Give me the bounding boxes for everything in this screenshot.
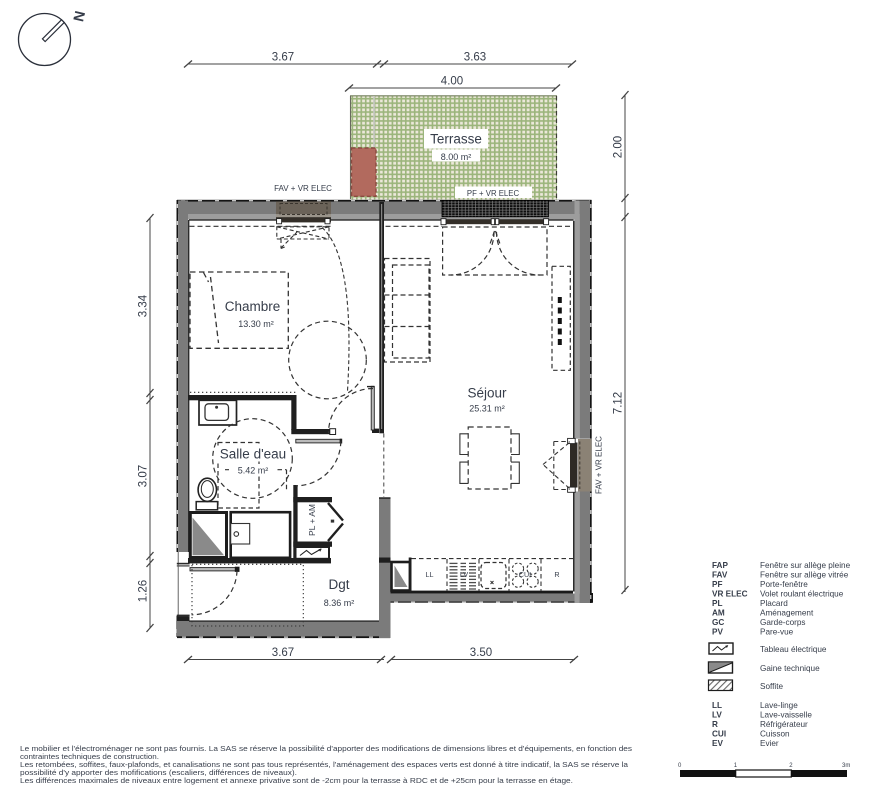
svg-text:FAV: FAV xyxy=(712,571,728,580)
svg-text:R: R xyxy=(712,720,718,729)
svg-text:Séjour: Séjour xyxy=(467,386,507,401)
svg-text:PL: PL xyxy=(712,599,722,608)
svg-text:2.00: 2.00 xyxy=(613,136,625,158)
svg-text:LV: LV xyxy=(460,570,468,579)
svg-text:8.36 m²: 8.36 m² xyxy=(324,598,355,608)
svg-text:Terrasse: Terrasse xyxy=(430,132,482,147)
svg-text:1.26: 1.26 xyxy=(138,580,150,602)
svg-text:Fenêtre sur allège pleine: Fenêtre sur allège pleine xyxy=(760,561,851,570)
svg-text:EV: EV xyxy=(712,739,723,748)
svg-text:Les différences maximales de n: Les différences maximales de niveaux ent… xyxy=(20,776,573,785)
svg-text:FAV + VR ELEC: FAV + VR ELEC xyxy=(595,436,604,494)
svg-text:Garde-corps: Garde-corps xyxy=(760,618,806,627)
svg-text:4.00: 4.00 xyxy=(441,76,463,88)
svg-text:3.34: 3.34 xyxy=(138,294,150,317)
svg-text:13.30 m²: 13.30 m² xyxy=(238,319,274,329)
svg-text:3.67: 3.67 xyxy=(272,647,294,659)
svg-text:Cuisson: Cuisson xyxy=(760,730,790,739)
svg-text:PV: PV xyxy=(712,628,723,637)
svg-text:Réfrigérateur: Réfrigérateur xyxy=(760,720,808,729)
svg-text:3.07: 3.07 xyxy=(138,465,150,487)
svg-text:LL: LL xyxy=(426,570,434,579)
svg-text:Soffite: Soffite xyxy=(760,682,784,691)
svg-text:Fenêtre sur allège vitrée: Fenêtre sur allège vitrée xyxy=(760,571,849,580)
svg-text:Placard: Placard xyxy=(760,599,788,608)
svg-text:AM: AM xyxy=(712,609,725,618)
svg-text:Lave-vaisselle: Lave-vaisselle xyxy=(760,711,812,720)
svg-text:FAP: FAP xyxy=(712,561,728,570)
svg-text:VR ELEC: VR ELEC xyxy=(712,590,748,599)
svg-text:PF: PF xyxy=(712,580,722,589)
svg-text:3.63: 3.63 xyxy=(464,52,486,64)
svg-text:GC: GC xyxy=(712,618,724,627)
svg-text:Dgt: Dgt xyxy=(328,577,349,592)
svg-text:Porte-fenêtre: Porte-fenêtre xyxy=(760,580,808,589)
svg-text:Volet roulant électrique: Volet roulant électrique xyxy=(760,590,844,599)
svg-text:R: R xyxy=(554,570,559,579)
svg-text:Salle d'eau: Salle d'eau xyxy=(220,447,286,462)
svg-text:3.67: 3.67 xyxy=(272,52,294,64)
svg-text:5.42 m²: 5.42 m² xyxy=(238,466,269,476)
svg-text:PL + AM: PL + AM xyxy=(307,504,317,536)
svg-text:3m: 3m xyxy=(842,763,850,769)
svg-text:Evier: Evier xyxy=(760,739,779,748)
svg-text:FAV + VR ELEC: FAV + VR ELEC xyxy=(274,184,332,193)
svg-text:Gaine technique: Gaine technique xyxy=(760,664,820,673)
svg-text:PF + VR ELEC: PF + VR ELEC xyxy=(467,189,520,198)
svg-text:CUI: CUI xyxy=(519,570,531,579)
svg-text:CUI: CUI xyxy=(712,730,726,739)
svg-text:Tableau électrique: Tableau électrique xyxy=(760,645,827,654)
svg-text:3.50: 3.50 xyxy=(470,647,492,659)
svg-text:Pare-vue: Pare-vue xyxy=(760,628,794,637)
svg-text:LL: LL xyxy=(712,701,722,710)
svg-text:Chambre: Chambre xyxy=(225,299,281,314)
svg-text:Lave-linge: Lave-linge xyxy=(760,701,798,710)
svg-text:7.12: 7.12 xyxy=(613,392,625,414)
svg-text:LV: LV xyxy=(712,711,722,720)
svg-text:Aménagement: Aménagement xyxy=(760,609,814,618)
svg-text:8.00 m²: 8.00 m² xyxy=(441,152,472,162)
svg-text:25.31 m²: 25.31 m² xyxy=(469,404,505,414)
